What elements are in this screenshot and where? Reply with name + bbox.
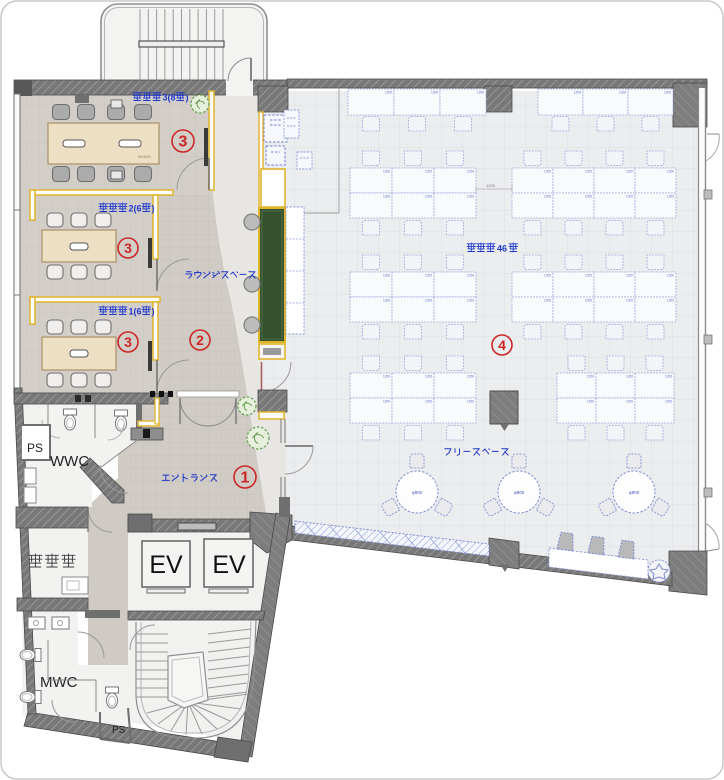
- svg-text:1200: 1200: [667, 299, 674, 303]
- svg-text:φ900: φ900: [412, 490, 423, 495]
- svg-text:PS: PS: [112, 725, 126, 736]
- svg-text:1200: 1200: [585, 170, 592, 174]
- svg-text:1200: 1200: [587, 375, 594, 379]
- svg-text:1200: 1200: [667, 274, 674, 278]
- svg-text:1200: 1200: [385, 91, 392, 95]
- svg-text:1200: 1200: [667, 195, 674, 199]
- svg-text:1200: 1200: [544, 195, 551, 199]
- svg-text:1200: 1200: [626, 400, 633, 404]
- svg-text:2: 2: [196, 332, 204, 348]
- svg-text:1200: 1200: [425, 299, 432, 303]
- svg-text:1200: 1200: [425, 375, 432, 379]
- svg-text:1200: 1200: [486, 183, 496, 188]
- svg-text:EV: EV: [149, 551, 183, 579]
- svg-text:1200: 1200: [467, 375, 474, 379]
- svg-text:1200: 1200: [425, 195, 432, 199]
- svg-text:1200: 1200: [619, 91, 626, 95]
- svg-text:1200: 1200: [467, 170, 474, 174]
- svg-text:1200: 1200: [585, 299, 592, 303]
- svg-text:1200: 1200: [431, 91, 438, 95]
- svg-text:1(6: 1(6: [129, 307, 142, 317]
- svg-text:1200: 1200: [626, 195, 633, 199]
- svg-text:1200: 1200: [667, 170, 674, 174]
- svg-text:1200: 1200: [626, 299, 633, 303]
- svg-text:1: 1: [241, 470, 250, 487]
- svg-text:1200: 1200: [544, 299, 551, 303]
- svg-text:1200: 1200: [383, 375, 390, 379]
- svg-text:3: 3: [179, 134, 188, 151]
- svg-text:1200: 1200: [587, 400, 594, 404]
- svg-text:1200: 1200: [383, 400, 390, 404]
- svg-text:1200: 1200: [665, 375, 672, 379]
- svg-text:2(6: 2(6: [129, 204, 142, 214]
- svg-text:WWC: WWC: [50, 453, 89, 470]
- svg-text:1200: 1200: [383, 274, 390, 278]
- svg-text:): ): [152, 204, 155, 214]
- svg-text:46: 46: [497, 244, 507, 254]
- svg-text:1200: 1200: [626, 375, 633, 379]
- svg-text:EV: EV: [212, 551, 246, 579]
- svg-text:1200: 1200: [665, 400, 672, 404]
- svg-text:): ): [186, 93, 189, 103]
- svg-text:W1500: W1500: [138, 154, 151, 159]
- svg-text:1200: 1200: [383, 299, 390, 303]
- svg-text:φ900: φ900: [629, 490, 640, 495]
- svg-text:1200: 1200: [383, 195, 390, 199]
- svg-text:): ): [152, 307, 155, 317]
- svg-text:MWC: MWC: [40, 674, 78, 691]
- svg-text:1200: 1200: [425, 274, 432, 278]
- svg-text:1200: 1200: [477, 91, 484, 95]
- svg-text:1200: 1200: [467, 299, 474, 303]
- svg-text:1200: 1200: [626, 274, 633, 278]
- svg-text:1200: 1200: [585, 274, 592, 278]
- svg-text:3(8: 3(8: [163, 93, 176, 103]
- svg-text:1200: 1200: [467, 274, 474, 278]
- svg-text:4: 4: [498, 337, 506, 353]
- svg-text:1200: 1200: [467, 195, 474, 199]
- svg-text:PS: PS: [27, 441, 43, 455]
- svg-text:1200: 1200: [585, 195, 592, 199]
- svg-text:1200: 1200: [425, 170, 432, 174]
- svg-text:1200: 1200: [425, 400, 432, 404]
- svg-text:3: 3: [124, 240, 132, 256]
- svg-text:1200: 1200: [383, 170, 390, 174]
- svg-text:φ900: φ900: [514, 490, 525, 495]
- svg-text:1200: 1200: [544, 170, 551, 174]
- svg-text:1200: 1200: [544, 274, 551, 278]
- svg-text:1200: 1200: [626, 170, 633, 174]
- svg-text:1200: 1200: [467, 400, 474, 404]
- svg-text:1200: 1200: [574, 91, 581, 95]
- svg-text:3: 3: [124, 334, 132, 350]
- svg-text:1200: 1200: [664, 91, 671, 95]
